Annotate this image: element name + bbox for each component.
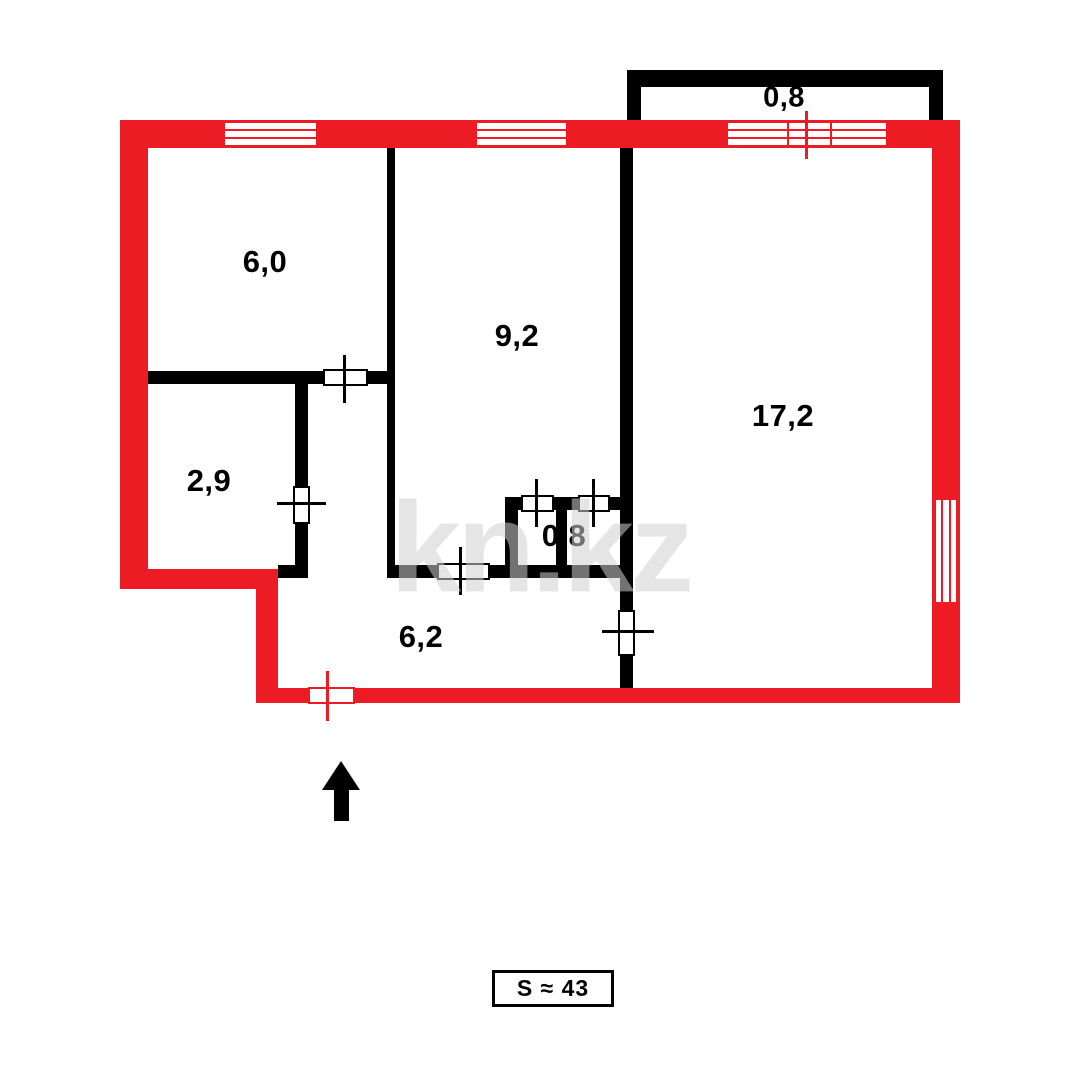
room-label-9-2: 9,2 (495, 318, 540, 354)
interior-wall-2-9-right (295, 371, 308, 578)
watermark: kn.kz (390, 475, 690, 622)
window-top-middle (475, 121, 568, 147)
window-right-wall (934, 498, 958, 604)
exterior-wall-right (932, 120, 960, 703)
north-arrow-icon (322, 761, 360, 790)
room-label-2-9: 2,9 (187, 463, 232, 499)
room-label-17-2: 17,2 (752, 398, 814, 434)
room-label-6-0: 6,0 (243, 244, 288, 280)
door-tick-17-2 (602, 630, 654, 633)
entrance-door-opening (308, 687, 355, 704)
exterior-wall-bottom (256, 688, 960, 703)
balcony-wall-left (627, 85, 641, 120)
exterior-wall-step-horiz (120, 569, 278, 589)
interior-wall-2-9-bottom-stub (278, 565, 308, 578)
entrance-door-tick (326, 671, 329, 721)
door-tick-6-0 (343, 355, 346, 403)
total-area-box: S ≈ 43 (492, 970, 614, 1007)
north-arrow-stem (334, 788, 349, 821)
floor-plan: 0,8 6,0 (0, 0, 1080, 1080)
total-area-label: S ≈ 43 (517, 975, 589, 1002)
exterior-wall-step-vert (256, 569, 278, 703)
balcony-wall-right (929, 85, 943, 120)
balcony-area-label: 0,8 (763, 82, 805, 115)
exterior-wall-left (120, 120, 148, 589)
room-label-6-2: 6,2 (399, 619, 444, 655)
window-center-tick (805, 111, 808, 159)
window-top-left (223, 121, 318, 147)
window-mullion (787, 123, 789, 145)
window-mullion (830, 123, 832, 145)
door-opening-2-9 (293, 486, 310, 524)
door-tick-2-9 (277, 502, 326, 505)
